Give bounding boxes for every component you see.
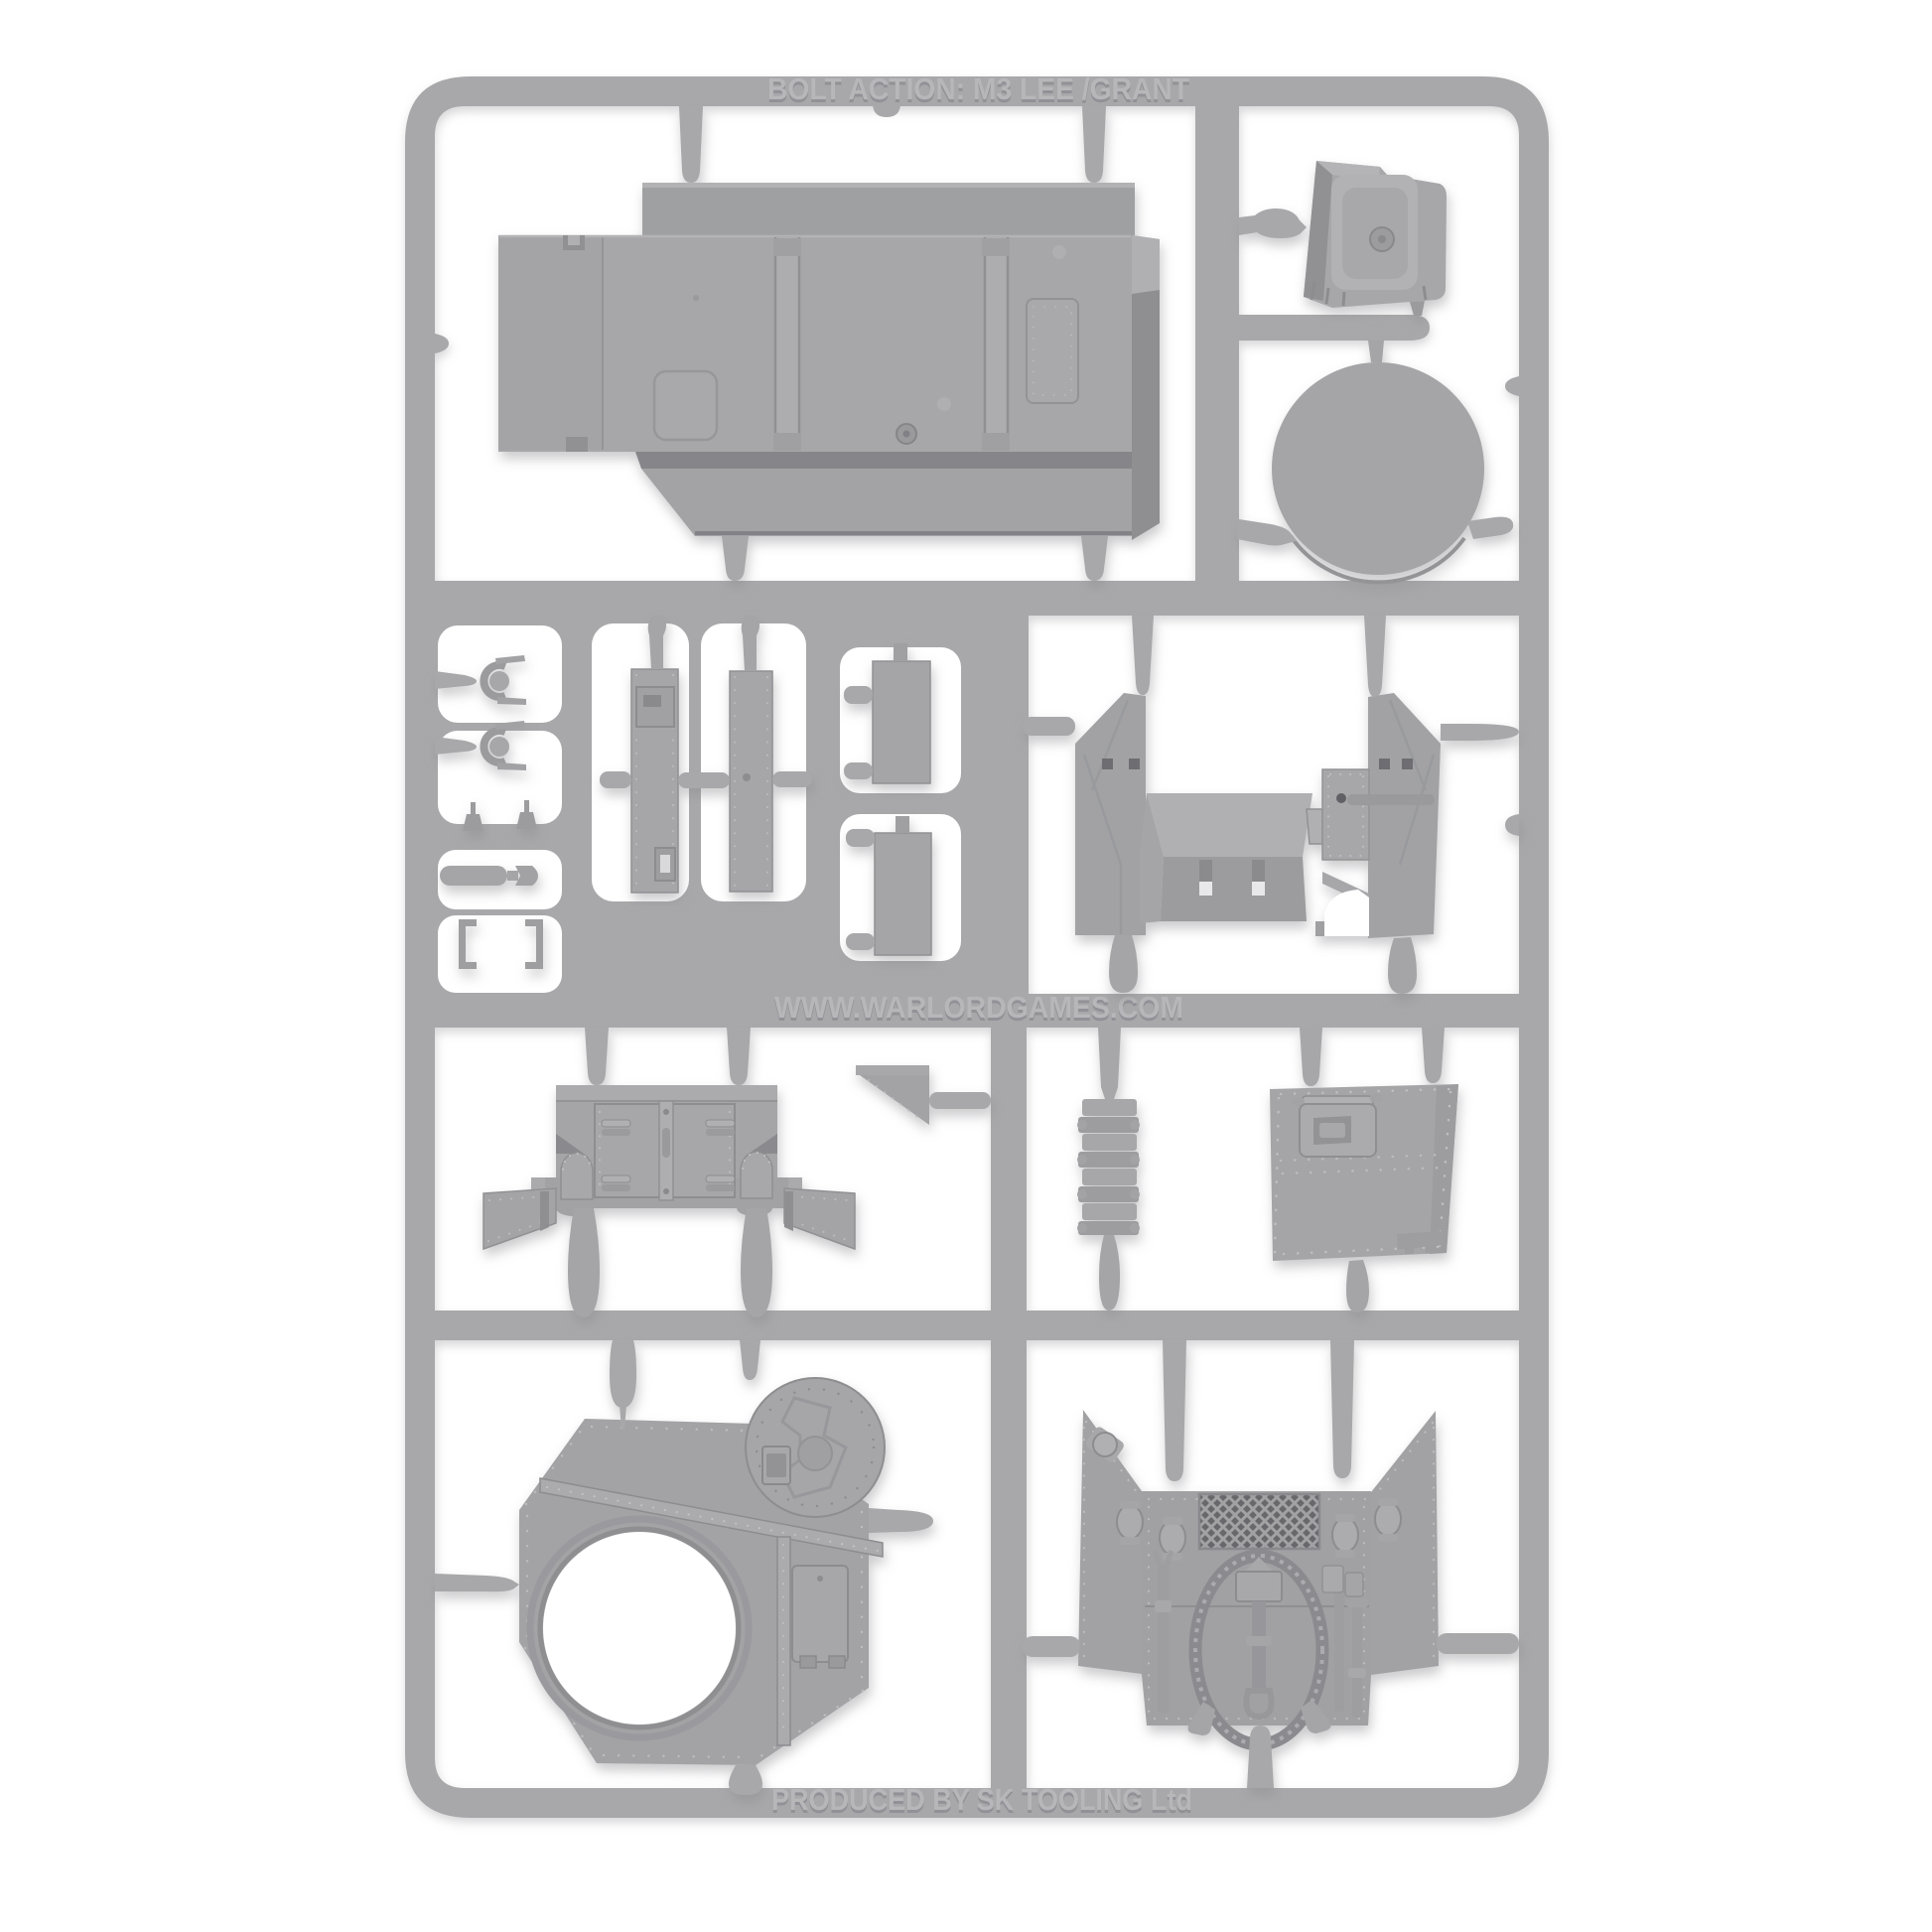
svg-text:PRODUCED BY SK TOOLING Ltd: PRODUCED BY SK TOOLING Ltd	[771, 1782, 1192, 1817]
svg-text:WWW.WARLORDGAMES.COM: WWW.WARLORDGAMES.COM	[774, 990, 1183, 1025]
svg-text:BOLT ACTION: M3 LEE /GRANT: BOLT ACTION: M3 LEE /GRANT	[767, 71, 1189, 106]
